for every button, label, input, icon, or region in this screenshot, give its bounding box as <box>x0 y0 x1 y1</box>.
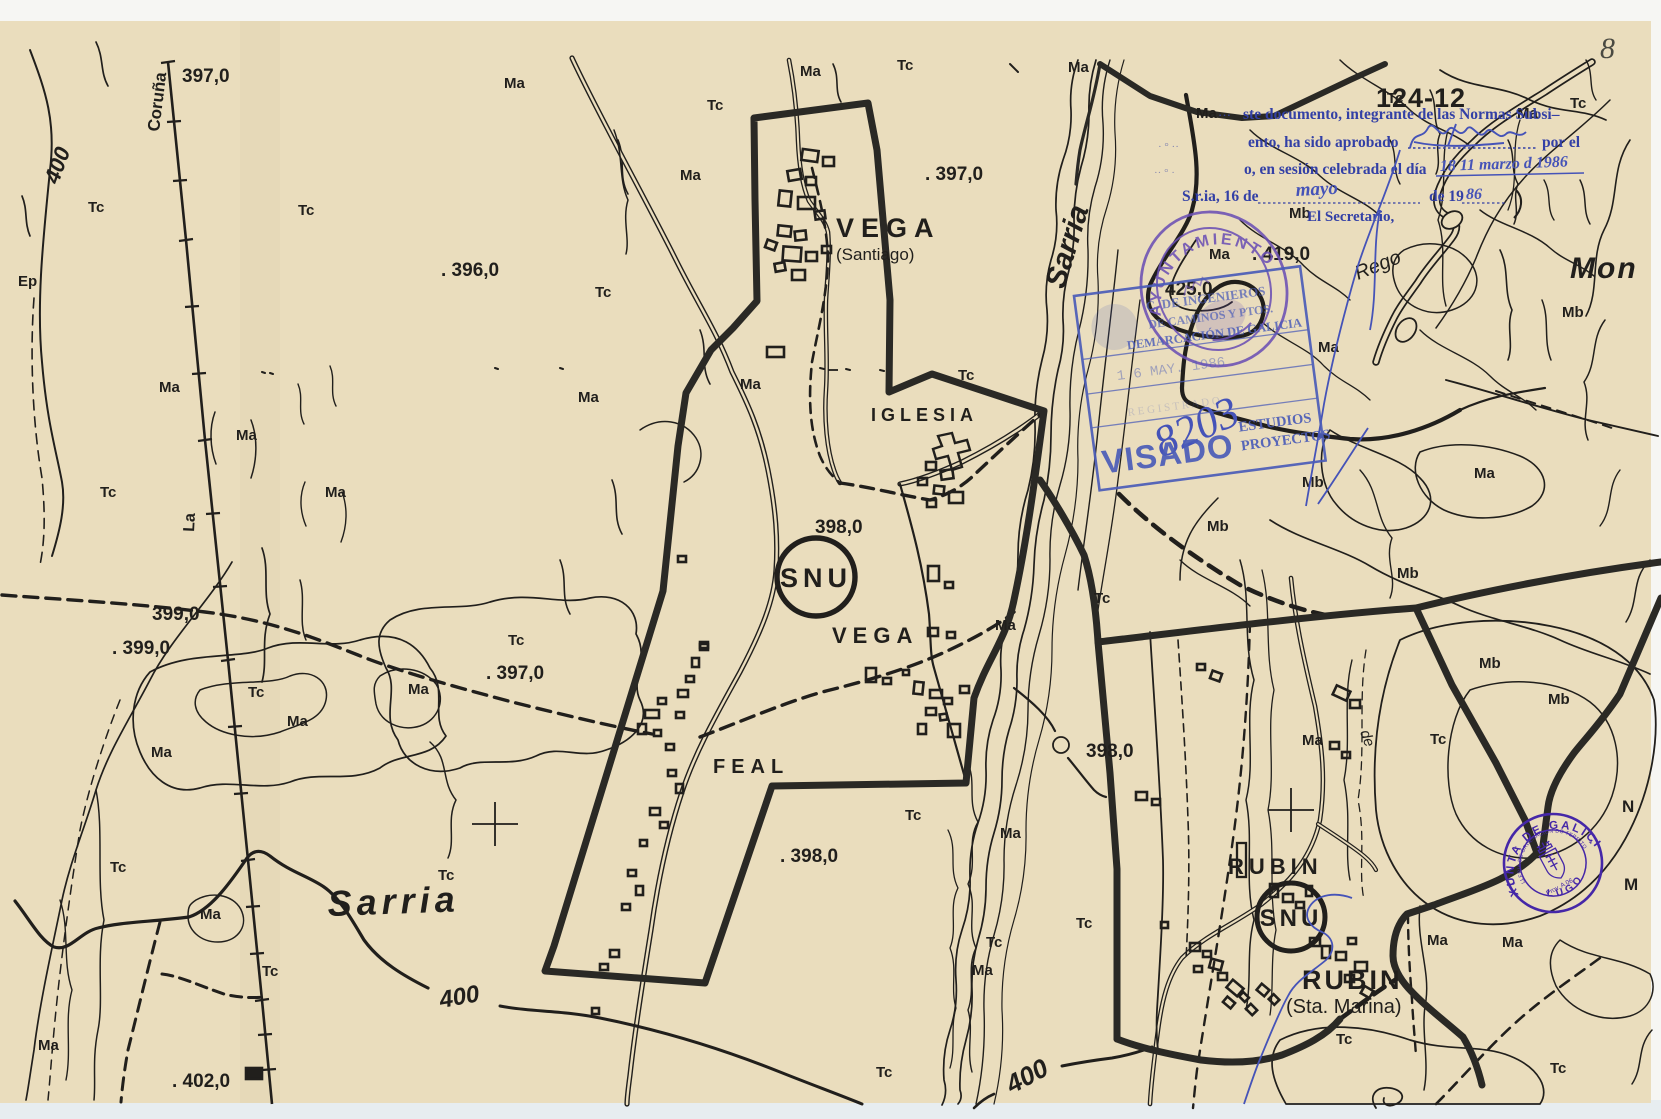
svg-text:·· ° ·: ·· ° · <box>1154 167 1175 179</box>
svg-text:M: M <box>1624 875 1638 894</box>
svg-text:Mb: Mb <box>1548 691 1570 708</box>
svg-text:Mb: Mb <box>1397 565 1419 582</box>
svg-text:. 398,0: . 398,0 <box>780 846 838 867</box>
svg-text:Tc: Tc <box>1336 1031 1352 1048</box>
svg-text:Mb: Mb <box>1302 474 1324 491</box>
svg-text:Mon: Mon <box>1570 252 1638 285</box>
svg-text:Tc: Tc <box>1076 915 1092 932</box>
svg-text:Tc: Tc <box>298 202 314 219</box>
svg-text:Tc: Tc <box>876 1064 892 1081</box>
svg-text:Tc: Tc <box>248 684 264 701</box>
svg-text:S.r.ia, 16 de: S.r.ia, 16 de <box>1182 188 1259 205</box>
svg-text:RUBIN: RUBIN <box>1302 965 1403 995</box>
svg-text:Ma: Ma <box>325 484 346 501</box>
svg-text:398,0: 398,0 <box>815 517 863 538</box>
svg-text:. 402,0: . 402,0 <box>172 1071 230 1092</box>
svg-text:Tc: Tc <box>100 484 116 501</box>
svg-text:por el: por el <box>1542 134 1581 151</box>
svg-text:Ma: Ma <box>38 1037 59 1054</box>
svg-text:ste documento, integrante de l: ste documento, integrante de las Normas … <box>1243 106 1560 123</box>
svg-text:Ep: Ep <box>18 273 37 290</box>
svg-text:Mb: Mb <box>1479 655 1501 672</box>
svg-text:N: N <box>1622 797 1634 816</box>
svg-text:Tc: Tc <box>1387 90 1403 107</box>
svg-text:Tc: Tc <box>88 199 104 216</box>
svg-text:8: 8 <box>1600 32 1615 65</box>
svg-text:· ° ··: · ° ·· <box>1158 141 1179 153</box>
svg-text:Ma: Ma <box>1474 465 1495 482</box>
svg-text:Ma: Ma <box>159 379 180 396</box>
svg-text:Ma: Ma <box>236 427 257 444</box>
svg-text:SNU: SNU <box>780 563 852 593</box>
svg-text:Tc: Tc <box>438 867 454 884</box>
svg-text:Tc: Tc <box>1430 731 1446 748</box>
svg-text:Ma: Ma <box>1196 105 1217 122</box>
svg-text:Tc: Tc <box>1094 590 1110 607</box>
svg-text:El Secretario,: El Secretario, <box>1307 209 1394 225</box>
svg-text:Sarria: Sarria <box>327 878 460 924</box>
svg-text:Tc: Tc <box>986 934 1002 951</box>
svg-text:RUBIN: RUBIN <box>1228 854 1323 879</box>
svg-text:Tc: Tc <box>508 632 524 649</box>
svg-text:399,0: 399,0 <box>152 604 200 625</box>
svg-text:Ma: Ma <box>740 376 761 393</box>
svg-text:Ma: Ma <box>1427 932 1448 949</box>
svg-text:SNU: SNU <box>1260 905 1323 932</box>
svg-text:. 396,0: . 396,0 <box>441 260 499 281</box>
svg-text:86: 86 <box>1466 186 1482 203</box>
svg-text:Ma: Ma <box>200 906 221 923</box>
svg-text:Ma: Ma <box>995 617 1016 634</box>
svg-text:VEGA: VEGA <box>832 623 918 648</box>
svg-text:. 397,0: . 397,0 <box>925 164 983 185</box>
svg-text:Ma: Ma <box>578 389 599 406</box>
svg-text:Tc: Tc <box>262 963 278 980</box>
svg-text:o, en sesión celebrada el día: o, en sesión celebrada el día <box>1244 161 1427 178</box>
svg-text:Ma: Ma <box>1502 934 1523 951</box>
svg-text:VEGA: VEGA <box>836 213 941 243</box>
svg-text:Ma: Ma <box>1068 59 1089 76</box>
svg-text:ento, ha sido aprobado: ento, ha sido aprobado <box>1248 134 1399 151</box>
svg-text:Tc: Tc <box>1550 1060 1566 1077</box>
svg-text:(Santiago): (Santiago) <box>836 245 914 264</box>
svg-text:La: La <box>181 513 199 533</box>
svg-text:. 397,0: . 397,0 <box>486 663 544 684</box>
svg-text:mayo: mayo <box>1295 178 1338 201</box>
svg-text:Tc: Tc <box>110 859 126 876</box>
svg-text:Tc: Tc <box>707 97 723 114</box>
svg-text:Ma: Ma <box>287 713 308 730</box>
svg-text:Ma: Ma <box>1302 732 1323 749</box>
svg-text:Tc: Tc <box>1570 95 1586 112</box>
svg-text:Ma: Ma <box>680 167 701 184</box>
svg-text:Tc: Tc <box>897 57 913 74</box>
svg-text:Ma: Ma <box>972 962 993 979</box>
svg-text:Mb: Mb <box>1562 304 1584 321</box>
svg-text:397,0: 397,0 <box>182 66 230 87</box>
svg-text:Ma: Ma <box>800 63 821 80</box>
svg-text:FEAL: FEAL <box>713 756 789 778</box>
svg-text:Ma: Ma <box>1000 825 1021 842</box>
svg-text:Tc: Tc <box>958 367 974 384</box>
svg-text:Ma: Ma <box>151 744 172 761</box>
svg-text:…: … <box>1218 104 1231 119</box>
svg-text:Ma: Ma <box>408 681 429 698</box>
svg-text:(Sta. Marina): (Sta. Marina) <box>1286 996 1402 1018</box>
svg-text:Mb: Mb <box>1207 518 1229 535</box>
svg-text:Tc: Tc <box>905 807 921 824</box>
svg-text:de 19: de 19 <box>1429 188 1464 205</box>
svg-text:Tc: Tc <box>595 284 611 301</box>
svg-text:. 399,0: . 399,0 <box>112 638 170 659</box>
svg-text:Ma: Ma <box>504 75 525 92</box>
svg-text:398,0: 398,0 <box>1086 741 1134 762</box>
svg-text:IGLESIA: IGLESIA <box>871 405 978 425</box>
